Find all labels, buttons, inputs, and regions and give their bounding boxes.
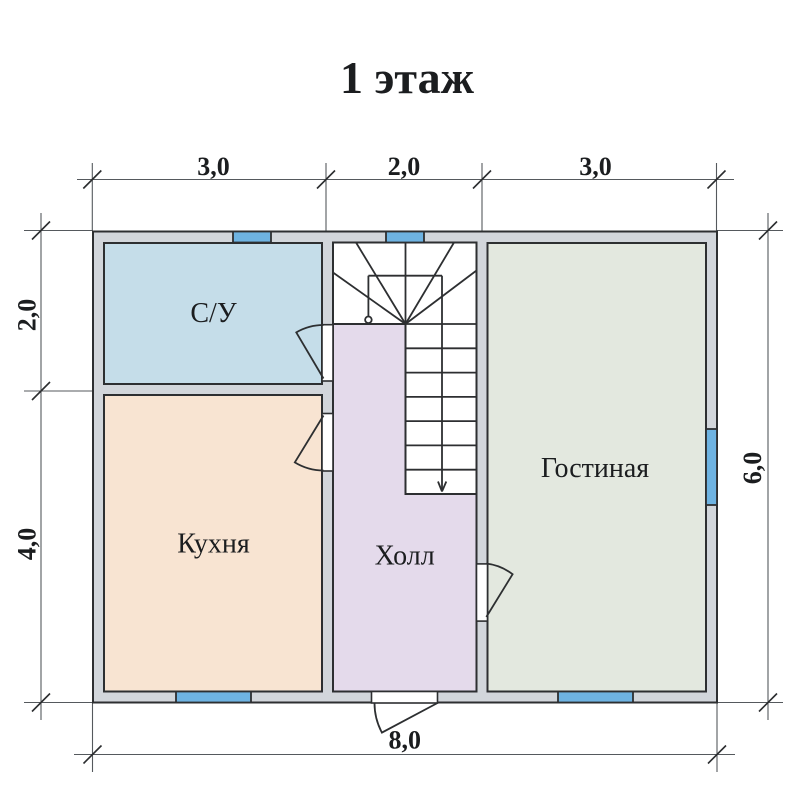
svg-text:8,0: 8,0 (388, 726, 421, 755)
svg-text:С/У: С/У (190, 298, 236, 329)
svg-text:6,0: 6,0 (738, 452, 767, 485)
svg-text:Гостиная: Гостиная (541, 453, 649, 484)
svg-text:3,0: 3,0 (197, 152, 230, 181)
svg-text:4,0: 4,0 (13, 528, 42, 561)
svg-text:Кухня: Кухня (177, 529, 250, 560)
svg-text:2,0: 2,0 (388, 152, 421, 181)
svg-text:1 этаж: 1 этаж (340, 52, 475, 103)
svg-text:3,0: 3,0 (579, 152, 612, 181)
svg-text:2,0: 2,0 (13, 299, 42, 332)
svg-text:Холл: Холл (375, 540, 435, 571)
